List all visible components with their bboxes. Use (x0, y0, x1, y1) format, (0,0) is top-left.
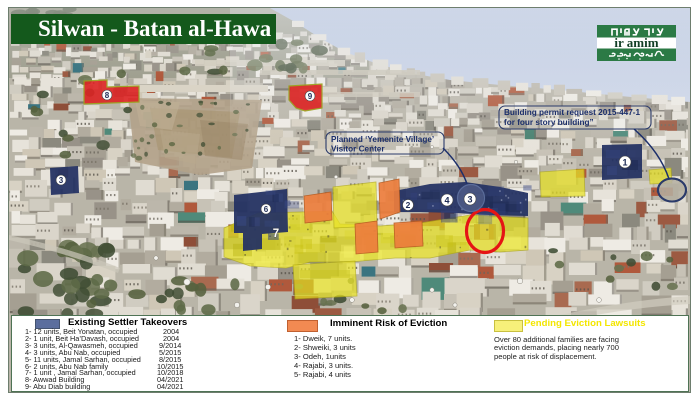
svg-text:for four story building”: for four story building” (504, 118, 594, 127)
svg-text:3: 3 (59, 176, 64, 185)
svg-text:6: 6 (264, 205, 269, 214)
svg-text:ir amim: ir amim (614, 35, 658, 50)
svg-text:7: 7 (273, 228, 279, 240)
svg-text:8: 8 (105, 91, 110, 100)
svg-text:3: 3 (467, 194, 472, 204)
svg-text:9: 9 (308, 92, 313, 101)
svg-text:Building permit request 2015-4: Building permit request 2015-447-1 (504, 108, 640, 117)
svg-text:2: 2 (406, 200, 411, 210)
svg-text:Visitor Center: Visitor Center (331, 145, 385, 154)
svg-text:4: 4 (444, 195, 449, 205)
svg-text:1: 1 (622, 157, 627, 167)
svg-text:Planned ‘Yemenite Village’: Planned ‘Yemenite Village’ (331, 135, 434, 144)
